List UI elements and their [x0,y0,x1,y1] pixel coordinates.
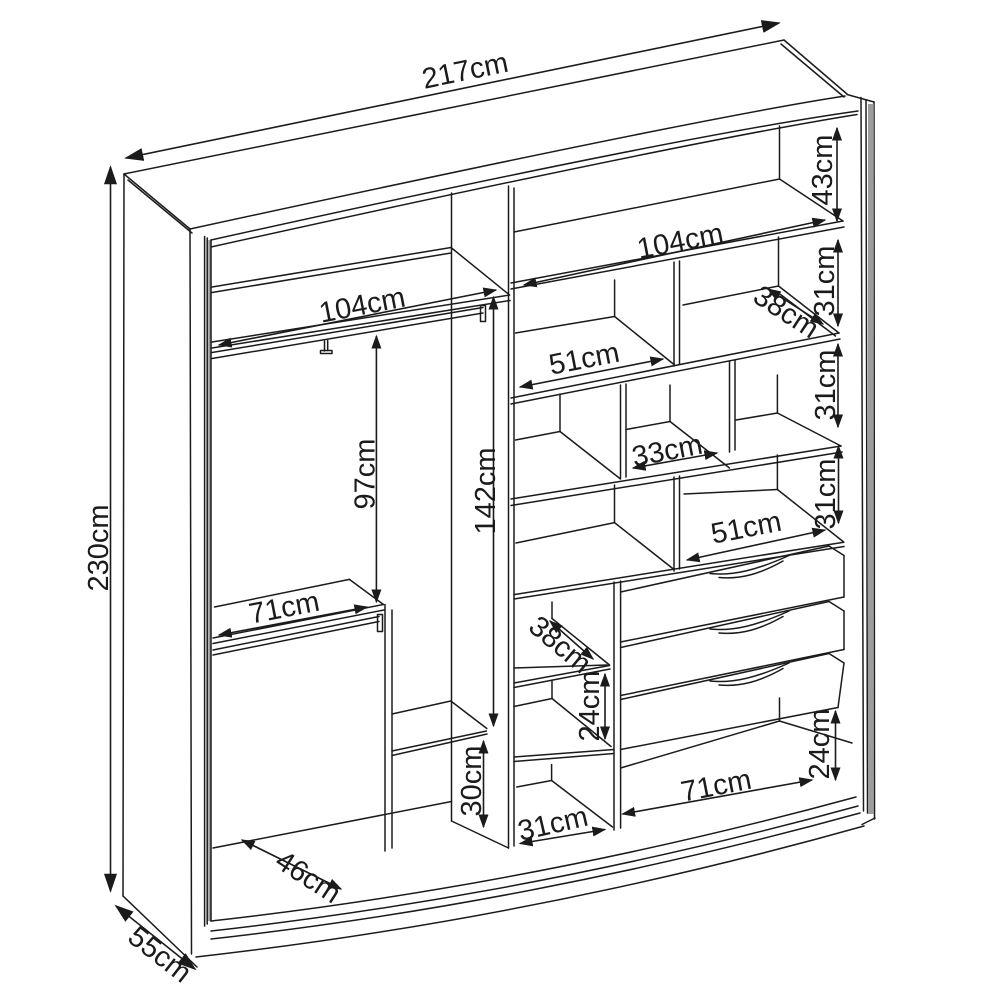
svg-text:230cm: 230cm [83,504,115,591]
svg-text:38cm: 38cm [522,610,597,680]
svg-text:30cm: 30cm [456,746,488,817]
svg-text:46cm: 46cm [269,845,346,910]
svg-text:97cm: 97cm [350,439,382,510]
svg-text:33cm: 33cm [629,429,705,474]
svg-text:43cm: 43cm [807,135,839,206]
svg-text:142cm: 142cm [470,447,502,534]
svg-text:104cm: 104cm [317,282,409,330]
svg-text:31cm: 31cm [810,459,842,530]
svg-text:31cm: 31cm [515,801,591,848]
svg-text:104cm: 104cm [635,218,727,266]
svg-text:71cm: 71cm [246,586,322,631]
svg-text:31cm: 31cm [809,246,841,317]
svg-text:24cm: 24cm [574,671,606,742]
svg-text:51cm: 51cm [708,506,784,551]
svg-text:55cm: 55cm [122,920,198,989]
svg-text:31cm: 31cm [810,350,842,421]
svg-text:24cm: 24cm [804,709,836,780]
svg-text:51cm: 51cm [546,337,622,382]
svg-text:71cm: 71cm [678,764,754,809]
